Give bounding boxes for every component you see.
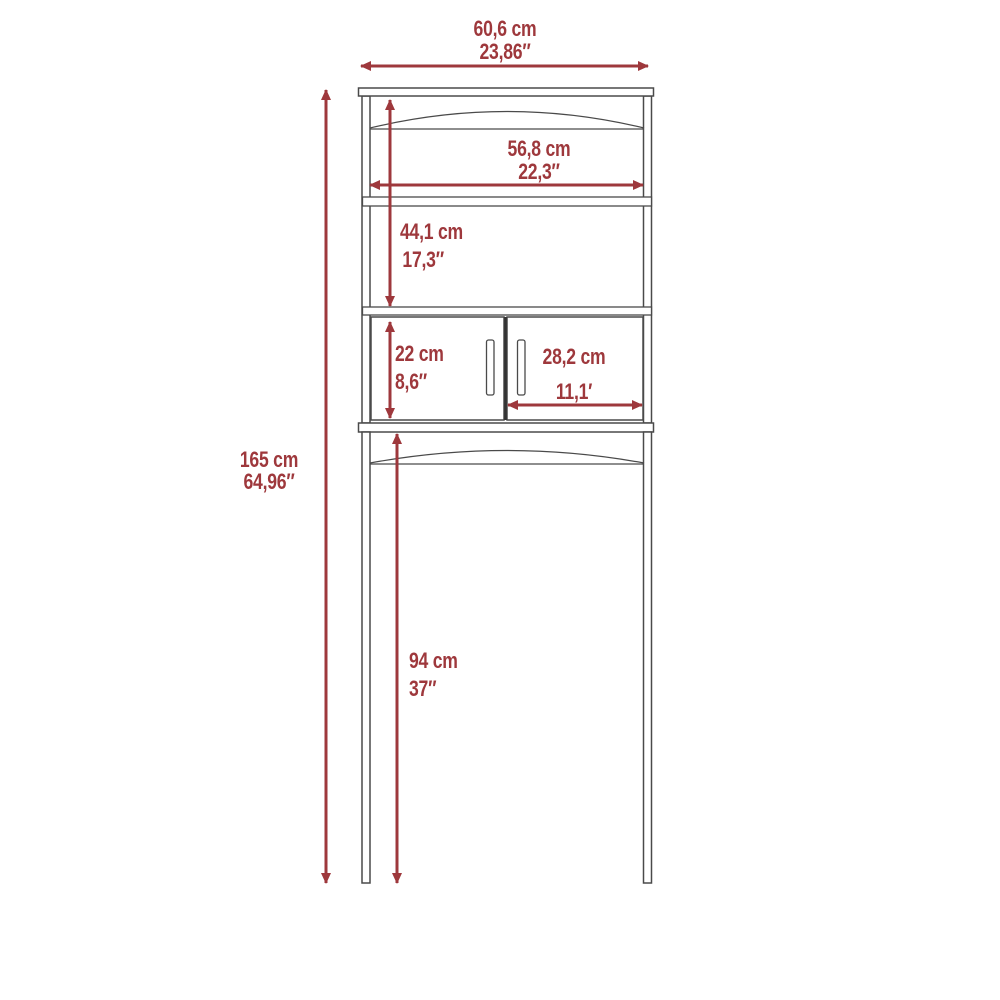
upper-section-height-inch: 17,3″	[400, 246, 463, 274]
left-door-handle	[487, 340, 495, 395]
door-height-label: 22 cm 8,6″	[395, 340, 444, 396]
door-height-inch: 8,6″	[395, 368, 444, 396]
shelf-width-inch: 22,3″	[475, 160, 603, 183]
upper-section-height-label: 44,1 cm 17,3″	[400, 218, 463, 274]
top-board	[359, 88, 654, 96]
overall-width-cm: 60,6 cm	[441, 17, 569, 40]
door-width-inch: 11,1′	[522, 374, 626, 409]
overall-width-inch: 23,86″	[441, 40, 569, 63]
right-side-panel	[644, 96, 652, 423]
lower-arch-curve	[370, 451, 644, 464]
overall-height-inch: 64,96″	[225, 471, 313, 493]
upper-shelf	[363, 197, 652, 206]
clearance-height-cm: 94 cm	[409, 647, 458, 675]
door-width-cm: 28,2 cm	[522, 339, 626, 374]
upper-section-height-cm: 44,1 cm	[400, 218, 463, 246]
door-height-cm: 22 cm	[395, 340, 444, 368]
shelf-width-cm: 56,8 cm	[475, 137, 603, 160]
clearance-height-inch: 37″	[409, 675, 458, 703]
left-side-panel	[362, 96, 370, 423]
furniture-dimension-diagram: 60,6 cm 23,86″ 165 cm 64,96″ 56,8 cm 22,…	[0, 0, 1000, 1000]
clearance-height-label: 94 cm 37″	[409, 647, 458, 703]
door-width-label: 28,2 cm 11,1′	[522, 339, 626, 409]
bottom-board	[359, 423, 654, 432]
left-leg	[362, 432, 370, 883]
cabinet-structure	[359, 88, 654, 883]
overall-height-cm: 165 cm	[225, 449, 313, 471]
right-leg	[644, 432, 652, 883]
dimension-arrows	[326, 66, 648, 883]
overall-height-label: 165 cm 64,96″	[225, 449, 313, 493]
upper-arch-curve	[370, 112, 644, 129]
shelf-width-label: 56,8 cm 22,3″	[475, 137, 603, 183]
overall-width-label: 60,6 cm 23,86″	[441, 17, 569, 63]
middle-shelf	[363, 307, 652, 315]
